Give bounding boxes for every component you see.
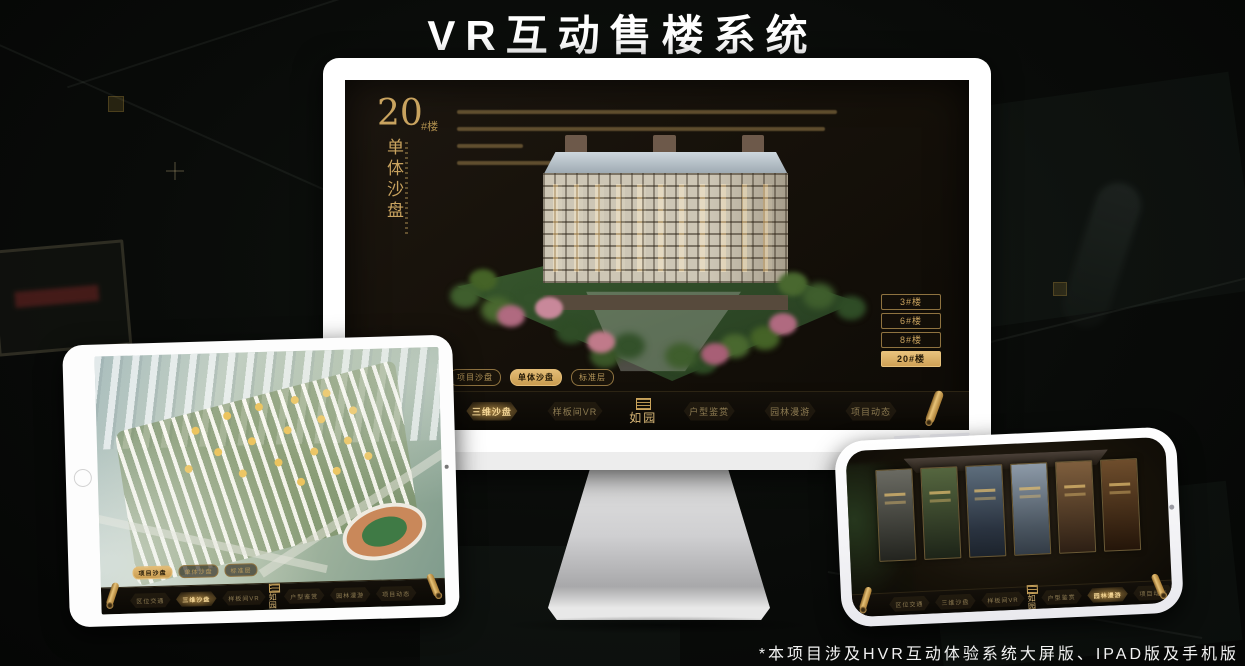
nav-garden-roam[interactable]: 园林漫游 [1084,586,1131,603]
nav-location-traffic[interactable]: 区位交通 [886,595,933,612]
power-button [930,433,970,438]
floor-button-3[interactable]: 3#楼 [881,294,941,310]
brand-logo: 如园 [1027,585,1039,611]
intro-text-line [457,127,825,131]
nav-showroom-vr[interactable]: 样板间VR [544,402,607,421]
home-button[interactable] [74,469,92,487]
tablet-device: 项目沙盘 单体沙盘 标准层 区位交通 三维沙盘 样板间VR 如园 户型鉴赏 园林… [62,335,460,628]
volume-button [894,435,920,439]
tab-project-sandbox[interactable]: 项目沙盘 [449,369,501,386]
scene-gallery [875,458,1141,562]
tab-single-sandbox[interactable]: 单体沙盘 [510,369,562,386]
page-title: VR互动售楼系统 [0,2,1245,63]
phone-device: 区位交通 三维沙盘 样板间VR 如园 户型鉴赏 园林漫游 项目动态 [834,426,1184,627]
gallery-card-interior[interactable] [1100,458,1141,552]
lit-windows [553,184,778,272]
brand-mark-faint [108,96,124,112]
building-number-suffix: #楼 [421,118,438,134]
nav-3d-sandbox[interactable]: 三维沙盘 [173,591,219,607]
brand-name: 如园 [1027,595,1039,611]
nav-3d-sandbox[interactable]: 三维沙盘 [463,402,521,421]
section-title-vertical: 单体沙盘 [381,138,406,222]
floor-button-8[interactable]: 8#楼 [881,332,941,348]
brand-name: 如园 [629,412,657,424]
gallery-card-day-building[interactable] [1010,462,1051,556]
nav-garden-roam[interactable]: 园林漫游 [327,586,373,602]
tab-project-sandbox[interactable]: 项目沙盘 [132,566,172,580]
award-plaque-faint [0,239,132,356]
monitor-stand-shadow [500,616,820,634]
gallery-card-courtyard[interactable] [875,468,916,562]
nav-floorplan-gallery[interactable]: 户型鉴赏 [281,588,327,604]
floor-selector: 3#楼 6#楼 8#楼 20#楼 [881,294,941,367]
nav-project-news[interactable]: 项目动态 [373,585,419,601]
section-subtitle-en-faint [405,142,408,234]
building-roof [543,148,788,175]
brand-logo: 如园 [629,398,657,424]
brand-mark-faint [1053,282,1067,296]
tab-single-sandbox[interactable]: 单体沙盘 [178,564,218,578]
nav-3d-sandbox[interactable]: 三维沙盘 [932,593,979,610]
brand-name: 如园 [269,593,282,609]
building-facade [543,173,788,283]
nav-showroom-vr[interactable]: 样板间VR [978,591,1028,608]
nav-showroom-vr[interactable]: 样板间VR [219,589,269,605]
gallery-card-garden[interactable] [920,466,961,560]
seal-icon [636,398,651,410]
nav-floorplan-gallery[interactable]: 户型鉴赏 [1038,588,1085,605]
monitor-stand [548,468,770,620]
building-model-3d[interactable] [440,138,870,386]
nav-garden-roam[interactable]: 园林漫游 [761,402,819,421]
phone-screen: 区位交通 三维沙盘 样板间VR 如园 户型鉴赏 园林漫游 项目动态 [845,437,1172,617]
camera-dot [1169,504,1174,509]
nav-project-news[interactable]: 项目动态 [842,402,900,421]
footnote: *本项目涉及HVR互动体验系统大屏版、IPAD版及手机版 [759,640,1239,664]
gallery-card-autumn[interactable] [1055,460,1096,554]
river-faint [1057,177,1147,334]
gallery-card-dusk-building[interactable] [965,464,1006,558]
residential-building [543,148,788,297]
tab-standard-floor[interactable]: 标准层 [571,369,614,386]
brand-logo: 如园 [268,583,281,609]
nav-floorplan-gallery[interactable]: 户型鉴赏 [680,402,738,421]
camera-dot [445,465,449,469]
building-base [543,295,788,310]
nav-location-traffic[interactable]: 区位交通 [127,592,173,608]
poster-stage: VR互动售楼系统 20 #楼 单体沙盘 [0,0,1245,666]
sandbox-sub-tabs: 项目沙盘 单体沙盘 标准层 [449,369,614,386]
tablet-screen: 项目沙盘 单体沙盘 标准层 区位交通 三维沙盘 样板间VR 如园 户型鉴赏 园林… [94,347,445,615]
building-number-heading: 20 [377,96,423,132]
tab-standard-floor[interactable]: 标准层 [224,563,257,577]
seal-icon [269,584,280,593]
compass-star [166,162,184,180]
aerial-photo-faint [951,72,1245,329]
floor-button-20[interactable]: 20#楼 [881,351,941,367]
flower-shrubs [440,138,466,158]
intro-text-line [457,110,837,114]
floor-button-6[interactable]: 6#楼 [881,313,941,329]
